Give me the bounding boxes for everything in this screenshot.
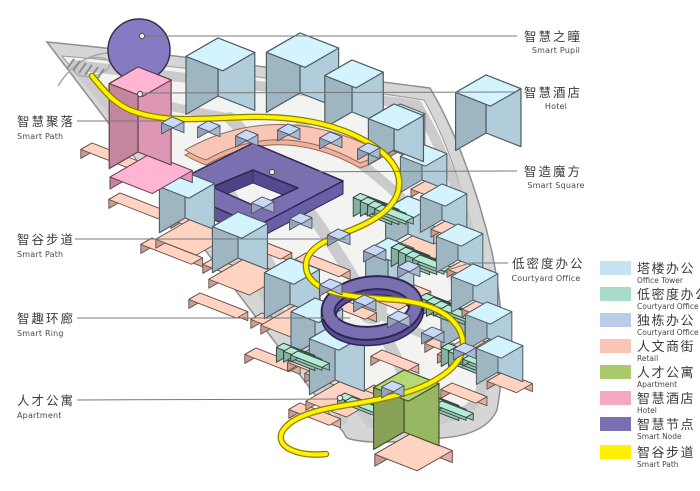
legend-label-zh: 智慧酒店	[637, 391, 695, 407]
callout-courtyard-office-zh: 低密度办公	[512, 256, 585, 271]
legend-label-zh: 智慧节点	[637, 417, 695, 433]
legend-label-en: Smart Node	[637, 432, 682, 441]
office-tower	[456, 75, 521, 150]
legend-label-en: Retail	[637, 354, 658, 363]
legend-label-zh: 低密度办公	[637, 287, 700, 303]
legend-label-en: Office Tower	[637, 276, 684, 285]
callout-smart-settlement-zh: 智慧聚落	[17, 114, 75, 129]
legend-swatch	[600, 445, 631, 459]
callout-smart-valley-path-zh: 智谷步道	[17, 232, 75, 247]
callout-smart-square-en: Smart Square	[527, 181, 584, 190]
legend-swatch	[600, 313, 631, 327]
callout-smart-square-zh: 智造魔方	[524, 164, 582, 179]
callout-dot	[269, 169, 274, 174]
legend-label-zh: 人才公寓	[637, 365, 695, 381]
callout-smart-valley-path-en: Smart Path	[17, 250, 63, 259]
callout-dot	[139, 33, 144, 38]
legend-item-smart-path: 智谷步道 Smart Path	[600, 445, 695, 469]
legend-item-smart-node: 智慧节点 Smart Node	[600, 417, 695, 441]
legend-swatch	[600, 287, 631, 301]
legend-item-office-tower: 塔楼办公 Office Tower	[600, 261, 695, 285]
legend-swatch	[600, 365, 631, 379]
legend-swatch	[600, 391, 631, 405]
callout-dot	[137, 91, 142, 96]
callout-smart-ring-zh: 智趣环廊	[17, 311, 75, 326]
site-plan-page: 智慧之瞳 Smart Pupil 智慧酒店 Hotel 智造魔方 Smart S…	[0, 0, 700, 491]
legend-swatch	[600, 417, 631, 431]
legend-swatch	[600, 339, 631, 353]
callout-smart-pupil-zh: 智慧之瞳	[524, 29, 582, 44]
legend-label-en: Smart Path	[637, 460, 679, 469]
legend-label-zh: 塔楼办公	[637, 262, 695, 277]
callout-dot	[337, 395, 342, 400]
callout-smart-pupil-en: Smart Pupil	[532, 46, 580, 55]
legend-item-courtyard-office: 低密度办公 Courtyard Office	[600, 287, 700, 311]
legend-label-en: Courtyard Office	[637, 328, 699, 337]
legend-label-zh: 独栋办公	[637, 313, 695, 329]
legend-label-en: Hotel	[637, 406, 657, 415]
callout-apartment-zh: 人才公寓	[17, 393, 75, 408]
callout-hotel-en: Hotel	[545, 102, 567, 111]
legend-label-en: Courtyard Office	[637, 302, 699, 311]
callout-courtyard-office-en: Courtyard Office	[511, 274, 580, 283]
callout-smart-settlement-en: Smart Path	[17, 132, 63, 141]
legend-label-zh: 人文商街	[637, 340, 695, 355]
retail-block	[189, 293, 248, 321]
callout-hotel-zh: 智慧酒店	[524, 85, 582, 100]
legend-label-zh: 智谷步道	[637, 446, 695, 461]
callout-smart-ring-en: Smart Ring	[17, 329, 64, 338]
legend-item-retail: 人文商街 Retail	[600, 339, 695, 363]
callout-apartment-en: Apartment	[17, 411, 62, 420]
site-plan: 智慧之瞳 Smart Pupil 智慧酒店 Hotel 智造魔方 Smart S…	[0, 0, 700, 491]
legend: 塔楼办公 Office Tower 低密度办公 Courtyard Office…	[600, 261, 700, 469]
legend-label-en: Apartment	[637, 380, 677, 389]
legend-item-detached-office: 独栋办公 Courtyard Office	[600, 313, 699, 337]
legend-item-hotel: 智慧酒店 Hotel	[600, 391, 695, 415]
leader-line	[77, 399, 340, 400]
legend-swatch	[600, 261, 631, 275]
legend-item-apartment: 人才公寓 Apartment	[600, 365, 695, 389]
